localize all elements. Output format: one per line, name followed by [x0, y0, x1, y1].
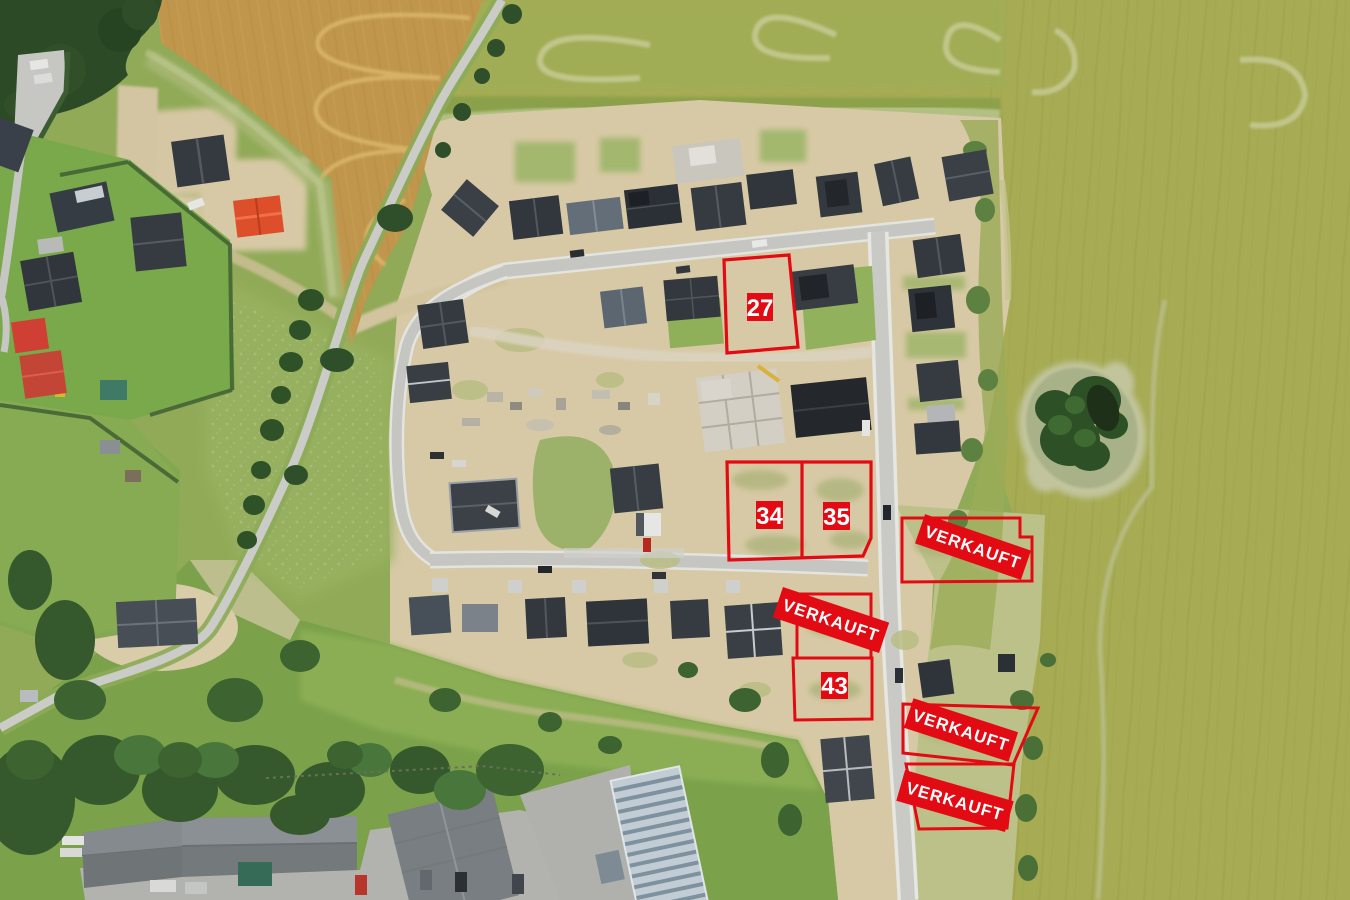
svg-text:27: 27	[747, 295, 774, 322]
svg-text:35: 35	[823, 504, 850, 531]
svg-text:34: 34	[756, 503, 783, 530]
svg-text:43: 43	[821, 673, 848, 700]
